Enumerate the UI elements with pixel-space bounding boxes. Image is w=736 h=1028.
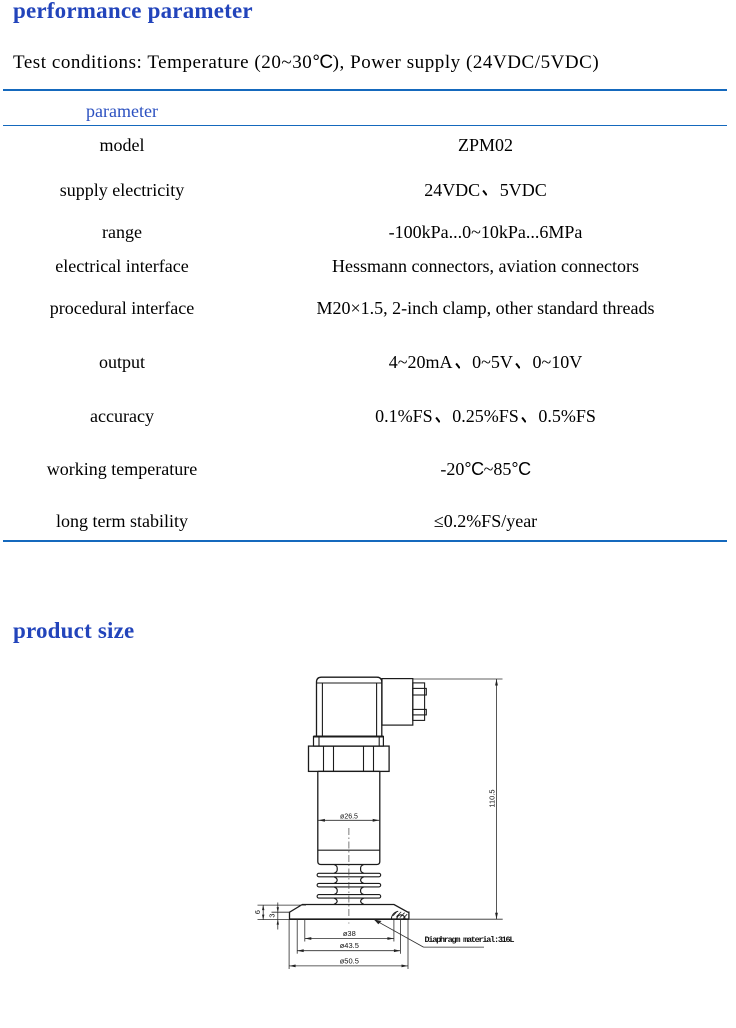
- svg-text:110.5: 110.5: [487, 789, 496, 807]
- svg-text:Diaphragm material:316L: Diaphragm material:316L: [425, 935, 515, 945]
- svg-text:6: 6: [253, 910, 262, 914]
- svg-text:ø50.5: ø50.5: [340, 956, 359, 965]
- svg-text:ø26.5: ø26.5: [340, 814, 358, 821]
- svg-text:3: 3: [268, 914, 277, 918]
- svg-text:ø38: ø38: [343, 929, 356, 938]
- svg-text:ø43.5: ø43.5: [340, 941, 359, 950]
